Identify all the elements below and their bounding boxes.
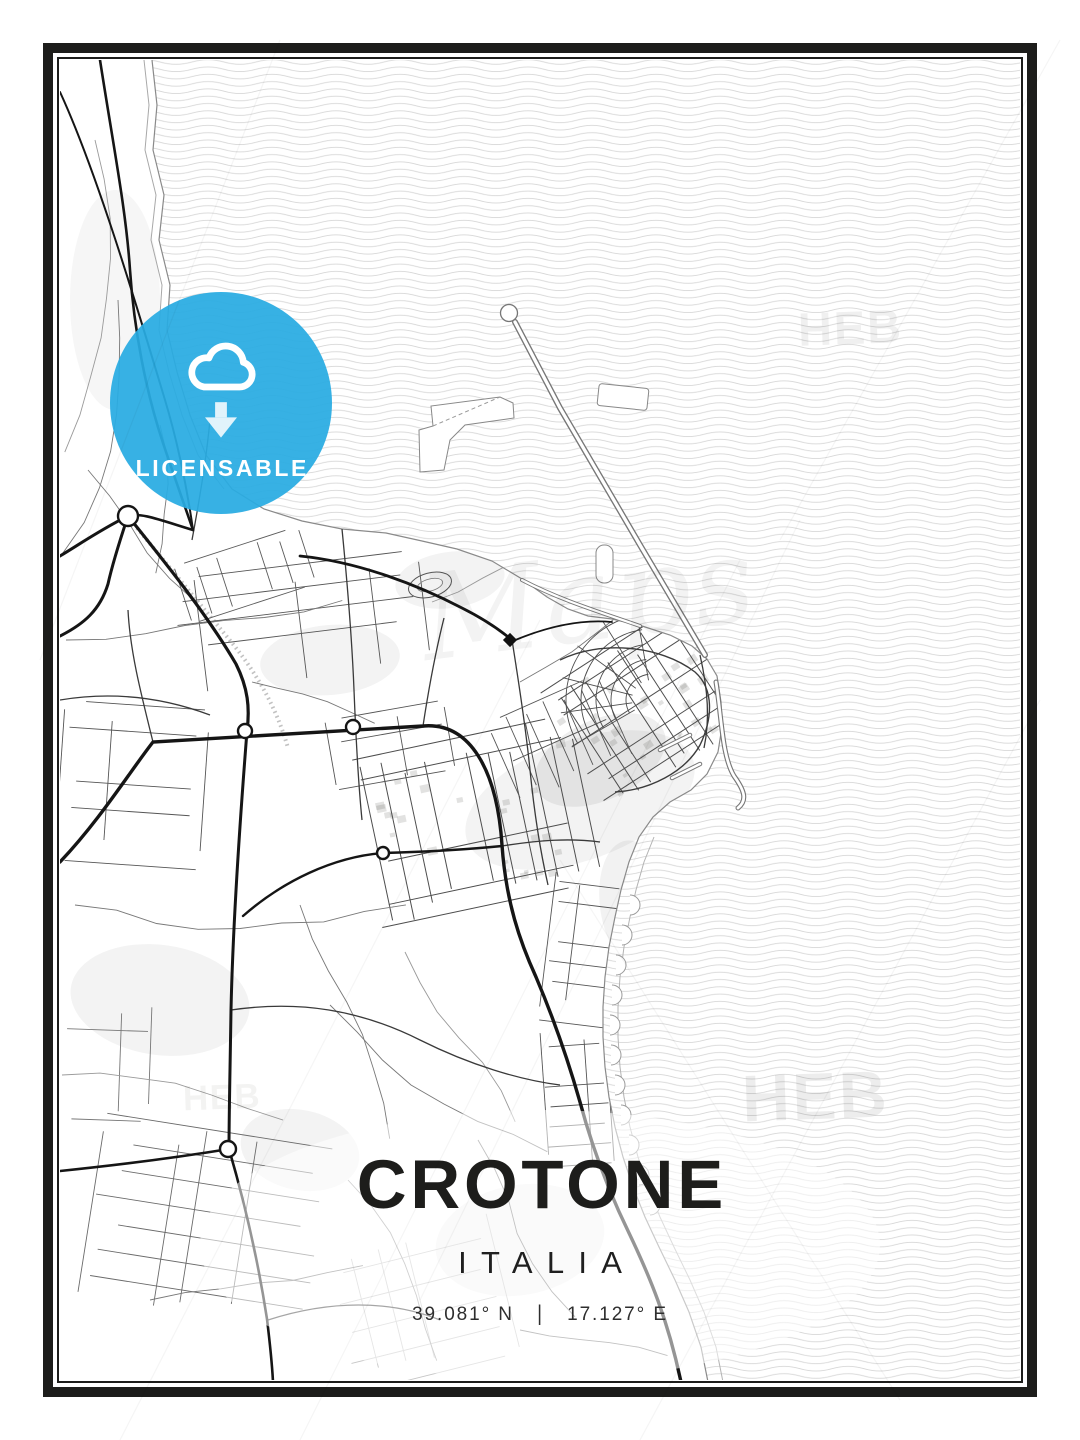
- page-title: CROTONE: [0, 1150, 1080, 1219]
- badge-label: LICENSABLE: [133, 455, 309, 482]
- poster-subtitle: ITALIA: [0, 1245, 1080, 1281]
- latitude-value: 39.081° N: [412, 1304, 514, 1325]
- licensable-badge[interactable]: LICENSABLE: [110, 292, 332, 514]
- download-arrow: [205, 402, 237, 437]
- map-poster: HEB HEB HEB Maps LICENSABLE CROTONE ITAL…: [0, 0, 1080, 1440]
- longitude-value: 17.127° E: [567, 1304, 668, 1325]
- poster-coordinates: 39.081° N | 17.127° E: [0, 1304, 1080, 1326]
- cloud-download-icon: [163, 328, 279, 446]
- coordinates-separator: |: [537, 1302, 544, 1327]
- title-block: CROTONE ITALIA 39.081° N | 17.127° E: [0, 1150, 1080, 1326]
